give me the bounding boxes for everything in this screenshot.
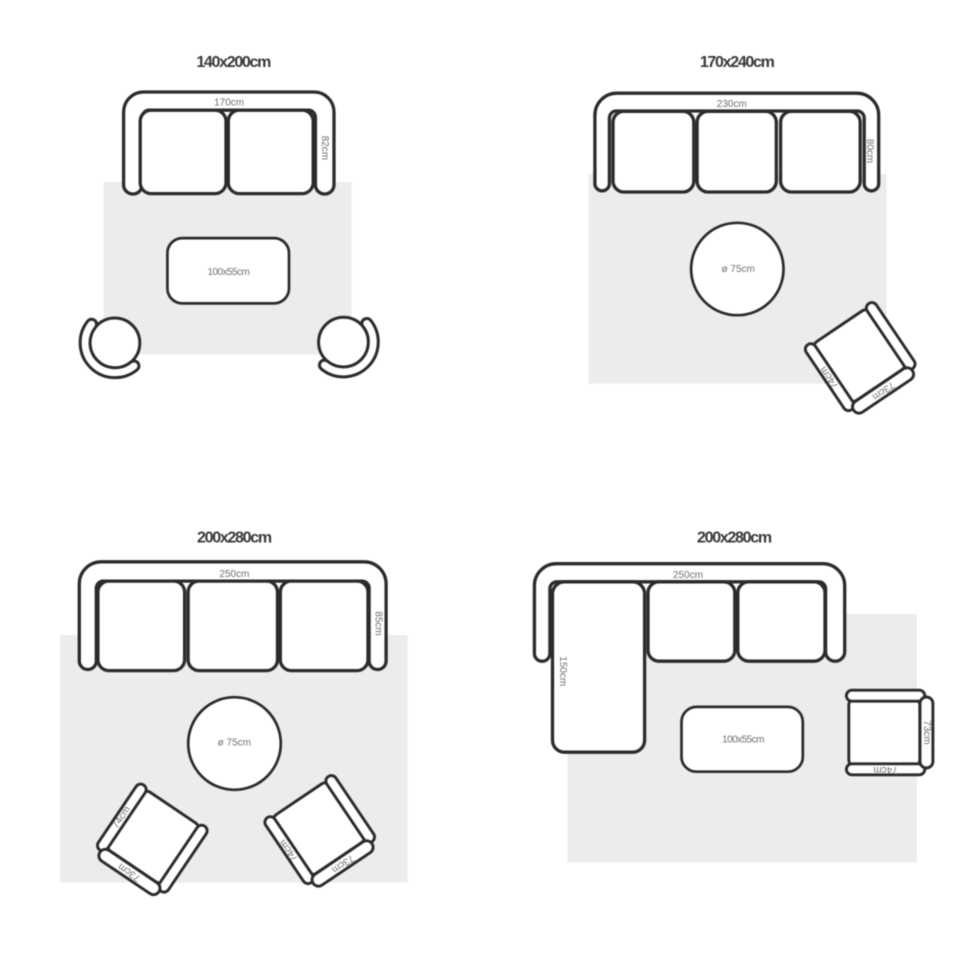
svg-text:200x280cm: 200x280cm — [197, 530, 272, 547]
svg-text:ø 75cm: ø 75cm — [218, 737, 251, 748]
svg-text:170x240cm: 170x240cm — [700, 54, 775, 71]
svg-text:ø 75cm: ø 75cm — [722, 264, 755, 275]
svg-text:82cm: 82cm — [319, 136, 330, 160]
svg-text:85cm: 85cm — [372, 611, 383, 635]
svg-text:100x55cm: 100x55cm — [208, 267, 250, 278]
svg-text:230cm: 230cm — [717, 99, 747, 110]
svg-text:170cm: 170cm — [214, 98, 244, 109]
svg-text:100x55cm: 100x55cm — [722, 734, 764, 745]
svg-text:200x280cm: 200x280cm — [697, 530, 772, 547]
svg-text:80cm: 80cm — [864, 139, 875, 163]
svg-text:140x200cm: 140x200cm — [196, 54, 271, 71]
svg-text:150cm: 150cm — [557, 656, 568, 686]
svg-text:250cm: 250cm — [219, 569, 249, 580]
svg-text:250cm: 250cm — [673, 570, 703, 581]
